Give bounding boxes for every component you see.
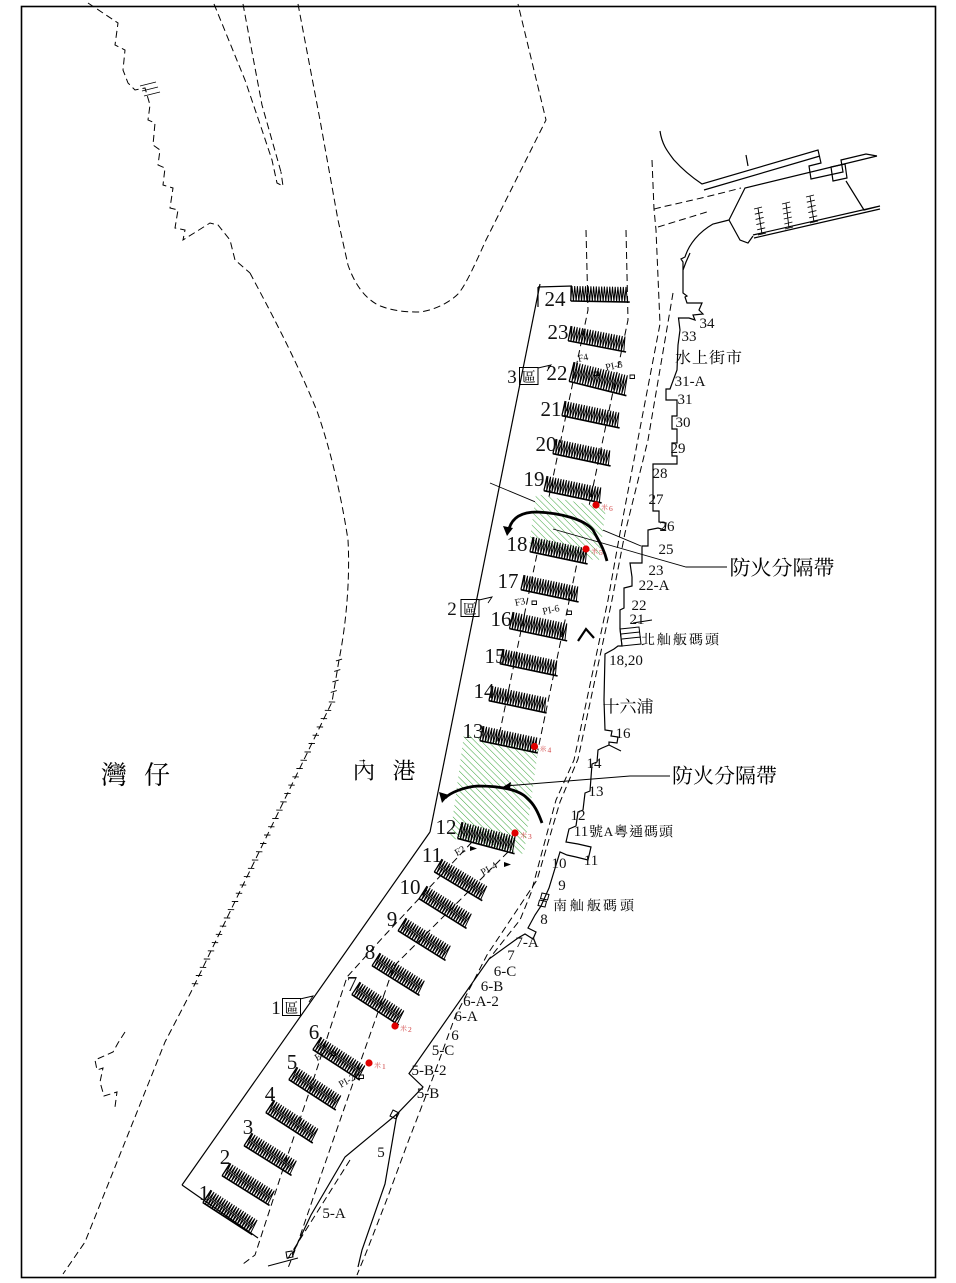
svg-text:19: 19: [524, 467, 545, 491]
svg-text:11: 11: [422, 843, 442, 867]
svg-text:3: 3: [243, 1115, 254, 1139]
svg-text:13: 13: [589, 784, 604, 800]
svg-text:9: 9: [558, 878, 566, 894]
svg-text:18: 18: [507, 532, 528, 556]
svg-text:8: 8: [540, 912, 548, 928]
svg-text:29: 29: [671, 441, 686, 457]
svg-text:6-C: 6-C: [494, 964, 517, 980]
svg-text:5: 5: [599, 548, 603, 557]
svg-text:22: 22: [547, 361, 568, 385]
svg-text:16: 16: [491, 607, 512, 631]
svg-text:12: 12: [436, 815, 457, 839]
svg-text:28: 28: [653, 466, 668, 482]
svg-text:17: 17: [498, 569, 519, 593]
svg-text:23: 23: [548, 320, 569, 344]
svg-text:5-C: 5-C: [432, 1043, 455, 1059]
svg-text:7-A: 7-A: [515, 935, 538, 951]
svg-text:8: 8: [365, 940, 376, 964]
svg-text:11: 11: [574, 824, 588, 840]
svg-text:26: 26: [660, 519, 676, 535]
svg-text:13: 13: [463, 719, 484, 743]
svg-text:2: 2: [220, 1145, 231, 1169]
svg-text:10: 10: [552, 856, 567, 872]
svg-text:16: 16: [616, 726, 632, 742]
svg-text:7: 7: [507, 948, 515, 964]
svg-text:24: 24: [545, 287, 567, 311]
svg-text:18,20: 18,20: [609, 653, 643, 669]
svg-text:6-B: 6-B: [481, 979, 504, 995]
svg-text:5-B: 5-B: [417, 1086, 440, 1102]
svg-text:27: 27: [649, 492, 665, 508]
svg-text:F3: F3: [514, 596, 527, 609]
svg-text:31-A: 31-A: [675, 374, 706, 390]
svg-text:11: 11: [584, 853, 598, 869]
svg-text:9: 9: [387, 907, 398, 931]
svg-text:10: 10: [400, 875, 421, 899]
svg-text:20: 20: [536, 432, 557, 456]
svg-text:5: 5: [287, 1050, 298, 1074]
svg-text:6: 6: [451, 1028, 459, 1044]
svg-text:5: 5: [377, 1145, 385, 1161]
svg-text:23: 23: [649, 563, 664, 579]
svg-text:5-B-2: 5-B-2: [412, 1063, 447, 1079]
svg-text:1: 1: [271, 998, 281, 1019]
svg-text:4: 4: [265, 1082, 276, 1106]
svg-text:22-A: 22-A: [639, 578, 670, 594]
svg-text:A: A: [604, 824, 614, 839]
svg-text:5-A: 5-A: [322, 1206, 345, 1222]
svg-text:4: 4: [548, 746, 552, 755]
svg-text:21: 21: [541, 397, 562, 421]
svg-text:14: 14: [587, 756, 603, 772]
svg-text:3: 3: [528, 832, 532, 841]
svg-text:25: 25: [659, 542, 674, 558]
svg-text:6-A: 6-A: [454, 1009, 477, 1025]
svg-text:1: 1: [199, 1181, 210, 1205]
svg-text:33: 33: [682, 329, 697, 345]
svg-text:2: 2: [408, 1025, 412, 1034]
svg-text:7: 7: [347, 972, 358, 996]
svg-text:12: 12: [571, 808, 586, 824]
svg-text:F4: F4: [577, 352, 590, 365]
svg-text:6-A-2: 6-A-2: [463, 994, 499, 1010]
svg-text:34: 34: [700, 316, 716, 332]
svg-text:31: 31: [678, 392, 693, 408]
svg-text:1: 1: [382, 1062, 386, 1071]
svg-text:3: 3: [507, 367, 517, 388]
svg-text:2: 2: [447, 599, 457, 620]
svg-text:30: 30: [676, 415, 691, 431]
svg-text:15: 15: [485, 644, 506, 668]
svg-text:21: 21: [630, 612, 645, 628]
svg-text:6: 6: [609, 504, 613, 513]
svg-text:14: 14: [474, 679, 496, 703]
svg-text:6: 6: [309, 1020, 320, 1044]
